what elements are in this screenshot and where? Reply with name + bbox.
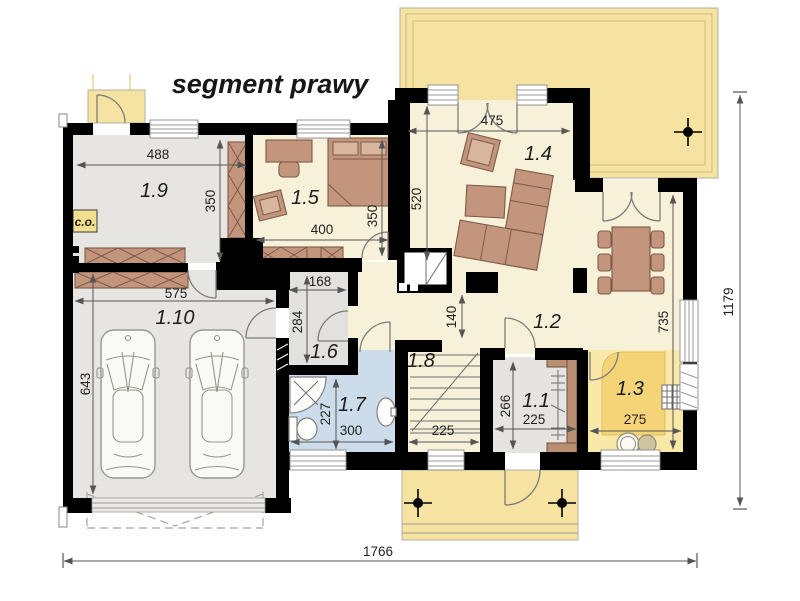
garage-door bbox=[92, 498, 265, 512]
window-east bbox=[680, 300, 698, 362]
radiator-mark bbox=[72, 256, 79, 263]
dim-label-284: 284 bbox=[290, 310, 305, 333]
dim-label-1179: 1179 bbox=[721, 287, 736, 316]
floor-plan-page: segment prawy 1.9 1.5 1.4 1.10 1.6 1.7 1… bbox=[0, 0, 800, 601]
room-label-1-5: 1.5 bbox=[291, 187, 320, 209]
dim-label-225b: 225 bbox=[523, 412, 546, 427]
stove bbox=[662, 385, 682, 409]
dim-label-1766: 1766 bbox=[363, 544, 393, 559]
dim-label-575: 575 bbox=[165, 286, 188, 301]
dim-label-300: 300 bbox=[340, 423, 363, 438]
window-1-4-left bbox=[428, 85, 458, 105]
dim-label-227: 227 bbox=[318, 403, 333, 426]
room-label-1-10: 1.10 bbox=[156, 307, 195, 329]
window-east-hatched bbox=[680, 364, 698, 410]
window-stairs bbox=[428, 450, 464, 470]
room-label-1-7: 1.7 bbox=[338, 394, 367, 416]
room-label-1-9: 1.9 bbox=[140, 180, 168, 202]
room-label-1-2: 1.2 bbox=[533, 311, 561, 333]
dim-label-735: 735 bbox=[656, 311, 671, 334]
dim-label-475: 475 bbox=[481, 113, 504, 128]
dim-label-275: 275 bbox=[624, 412, 647, 427]
window-1-5 bbox=[297, 120, 350, 138]
dim-label-140: 140 bbox=[444, 306, 459, 329]
dim-label-350a: 350 bbox=[203, 190, 218, 213]
dim-label-488: 488 bbox=[147, 147, 170, 162]
room-label-1-3: 1.3 bbox=[616, 378, 644, 400]
room-label-1-1: 1.1 bbox=[522, 390, 550, 412]
page-title: segment prawy bbox=[172, 69, 371, 99]
dim-label-168: 168 bbox=[309, 274, 332, 289]
dim-label-225a: 225 bbox=[432, 423, 455, 438]
wall-vent-bottom bbox=[59, 507, 67, 527]
wardrobe-1-9 bbox=[228, 142, 247, 238]
wall-vent-top bbox=[59, 114, 67, 127]
dim-label-400: 400 bbox=[311, 222, 334, 237]
window-1-4-right bbox=[517, 85, 547, 105]
car-right bbox=[186, 330, 248, 478]
dim-label-266: 266 bbox=[498, 395, 513, 418]
room-label-1-4: 1.4 bbox=[524, 143, 552, 165]
dim-label-350b: 350 bbox=[365, 205, 380, 228]
window-kitchen bbox=[601, 450, 660, 470]
central-heating-label: c.o. bbox=[75, 215, 96, 229]
dining-set bbox=[598, 227, 664, 294]
room-label-1-8: 1.8 bbox=[407, 350, 435, 372]
entrance-porch bbox=[402, 470, 578, 540]
room-label-1-6: 1.6 bbox=[310, 341, 339, 363]
toilet bbox=[289, 417, 317, 441]
window-bath bbox=[290, 450, 346, 470]
dim-label-643: 643 bbox=[78, 373, 93, 396]
coffee-table bbox=[465, 185, 506, 218]
car-left bbox=[97, 330, 159, 478]
chimney bbox=[399, 252, 447, 291]
dim-label-520: 520 bbox=[409, 188, 424, 211]
floor-bath-nook bbox=[358, 350, 395, 376]
radiator-mark bbox=[72, 246, 79, 253]
floor-plan-svg: segment prawy 1.9 1.5 1.4 1.10 1.6 1.7 1… bbox=[0, 0, 800, 601]
window-1-9 bbox=[150, 120, 198, 138]
